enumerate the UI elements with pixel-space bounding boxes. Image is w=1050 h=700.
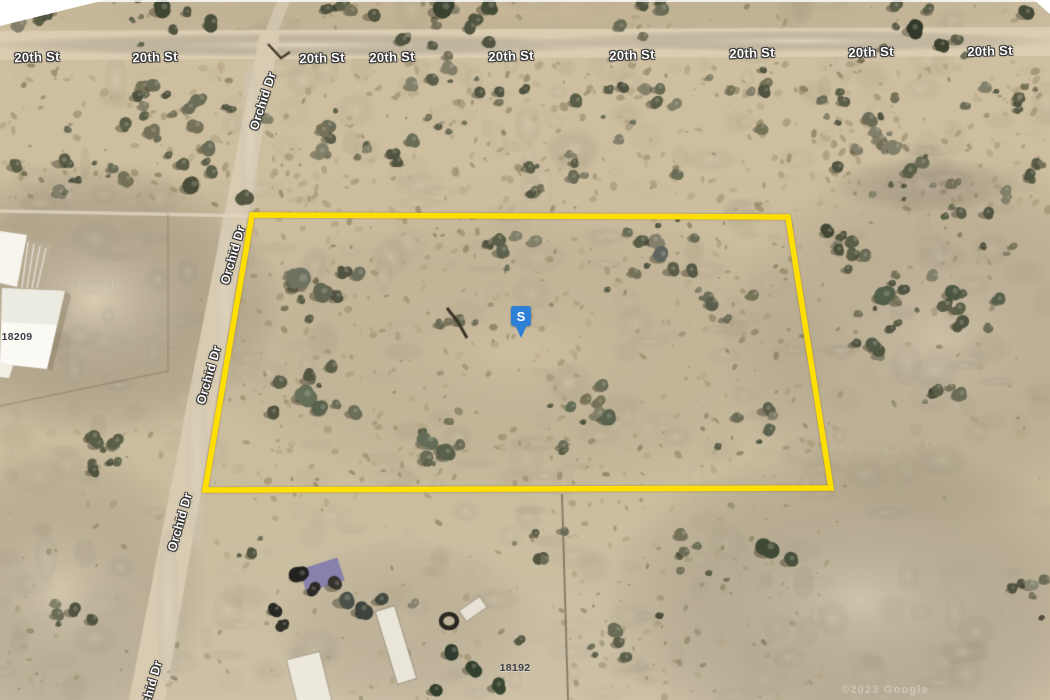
street-label: 20th St xyxy=(967,43,1013,60)
marker-tail xyxy=(515,325,527,338)
satellite-map-viewport[interactable]: S 20th St20th St20th St20th St20th St20t… xyxy=(0,0,1050,700)
street-label: 20th St xyxy=(729,45,775,62)
street-label: 20th St xyxy=(488,48,534,65)
lot-number: 18209 xyxy=(2,331,33,343)
map-watermark: ©2023 Google xyxy=(841,684,929,696)
street-label: 20th St xyxy=(299,50,345,67)
map-watermark: ©2023 Google xyxy=(814,444,902,456)
street-label: 20th St xyxy=(14,49,60,66)
street-label: 20th St xyxy=(609,47,655,64)
satellite-imagery xyxy=(0,0,1050,700)
street-label: 20th St xyxy=(369,49,415,66)
marker-label: S xyxy=(517,309,526,324)
street-label: 20th St xyxy=(848,44,894,61)
property-marker[interactable]: S xyxy=(511,306,531,326)
street-label: 20th St xyxy=(132,49,178,66)
lot-number: 18192 xyxy=(500,662,531,674)
map-watermark: Google xyxy=(77,280,122,292)
